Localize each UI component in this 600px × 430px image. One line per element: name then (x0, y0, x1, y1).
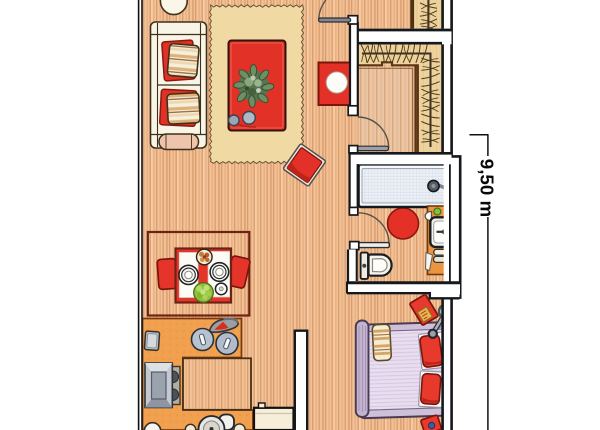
svg-text:9,50 m: 9,50 m (477, 159, 498, 217)
